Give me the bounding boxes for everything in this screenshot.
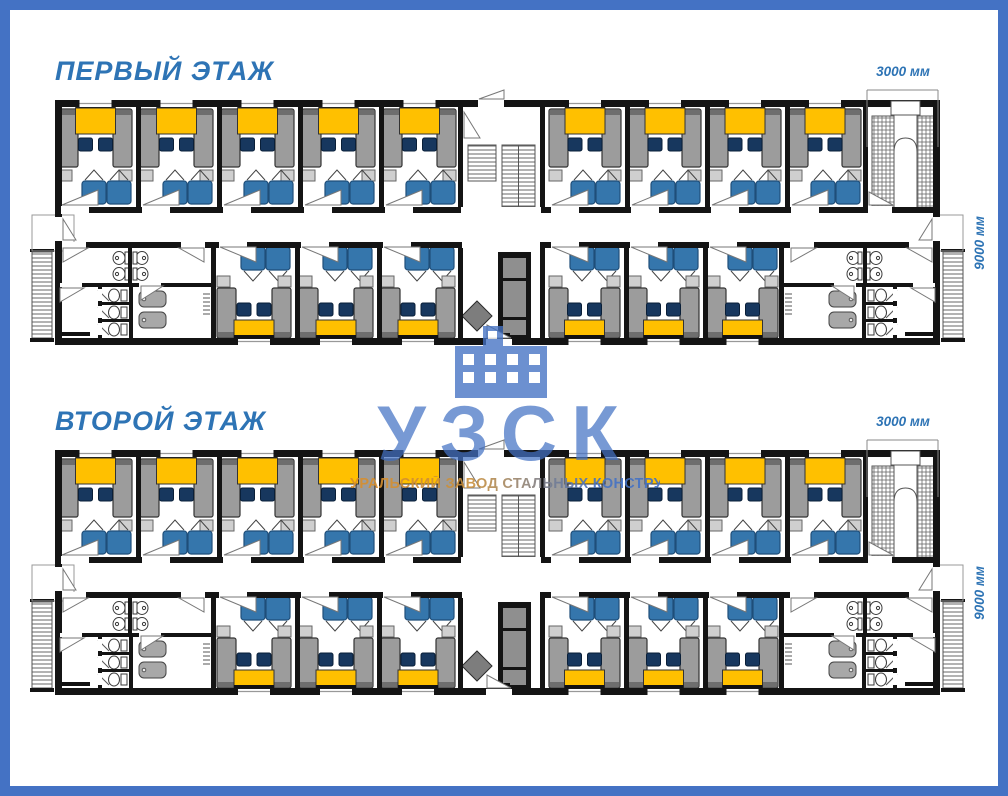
floor-1-title: ПЕРВЫЙ ЭТАЖ — [55, 56, 274, 87]
floor-2-depth-dimension: 9000 мм — [972, 538, 988, 648]
watermark-company-subtitle: УРАЛЬСКИЙ ЗАВОД СТАЛЬНЫХ КОНСТРУКЦИЙ — [350, 476, 660, 492]
watermark-company-abbr: УЗСК — [348, 388, 662, 479]
floor-2-title: ВТОРОЙ ЭТАЖ — [55, 406, 266, 437]
floor-2-width-dimension: 3000 мм — [853, 414, 953, 429]
floor-1-width-dimension: 3000 мм — [853, 64, 953, 79]
floor-plan-1 — [30, 90, 965, 345]
floor-1-depth-dimension: 9000 мм — [972, 188, 988, 298]
floor-plan-sheet: ПЕРВЫЙ ЭТАЖ ВТОРОЙ ЭТАЖ 3000 мм 3000 мм … — [0, 0, 1008, 796]
